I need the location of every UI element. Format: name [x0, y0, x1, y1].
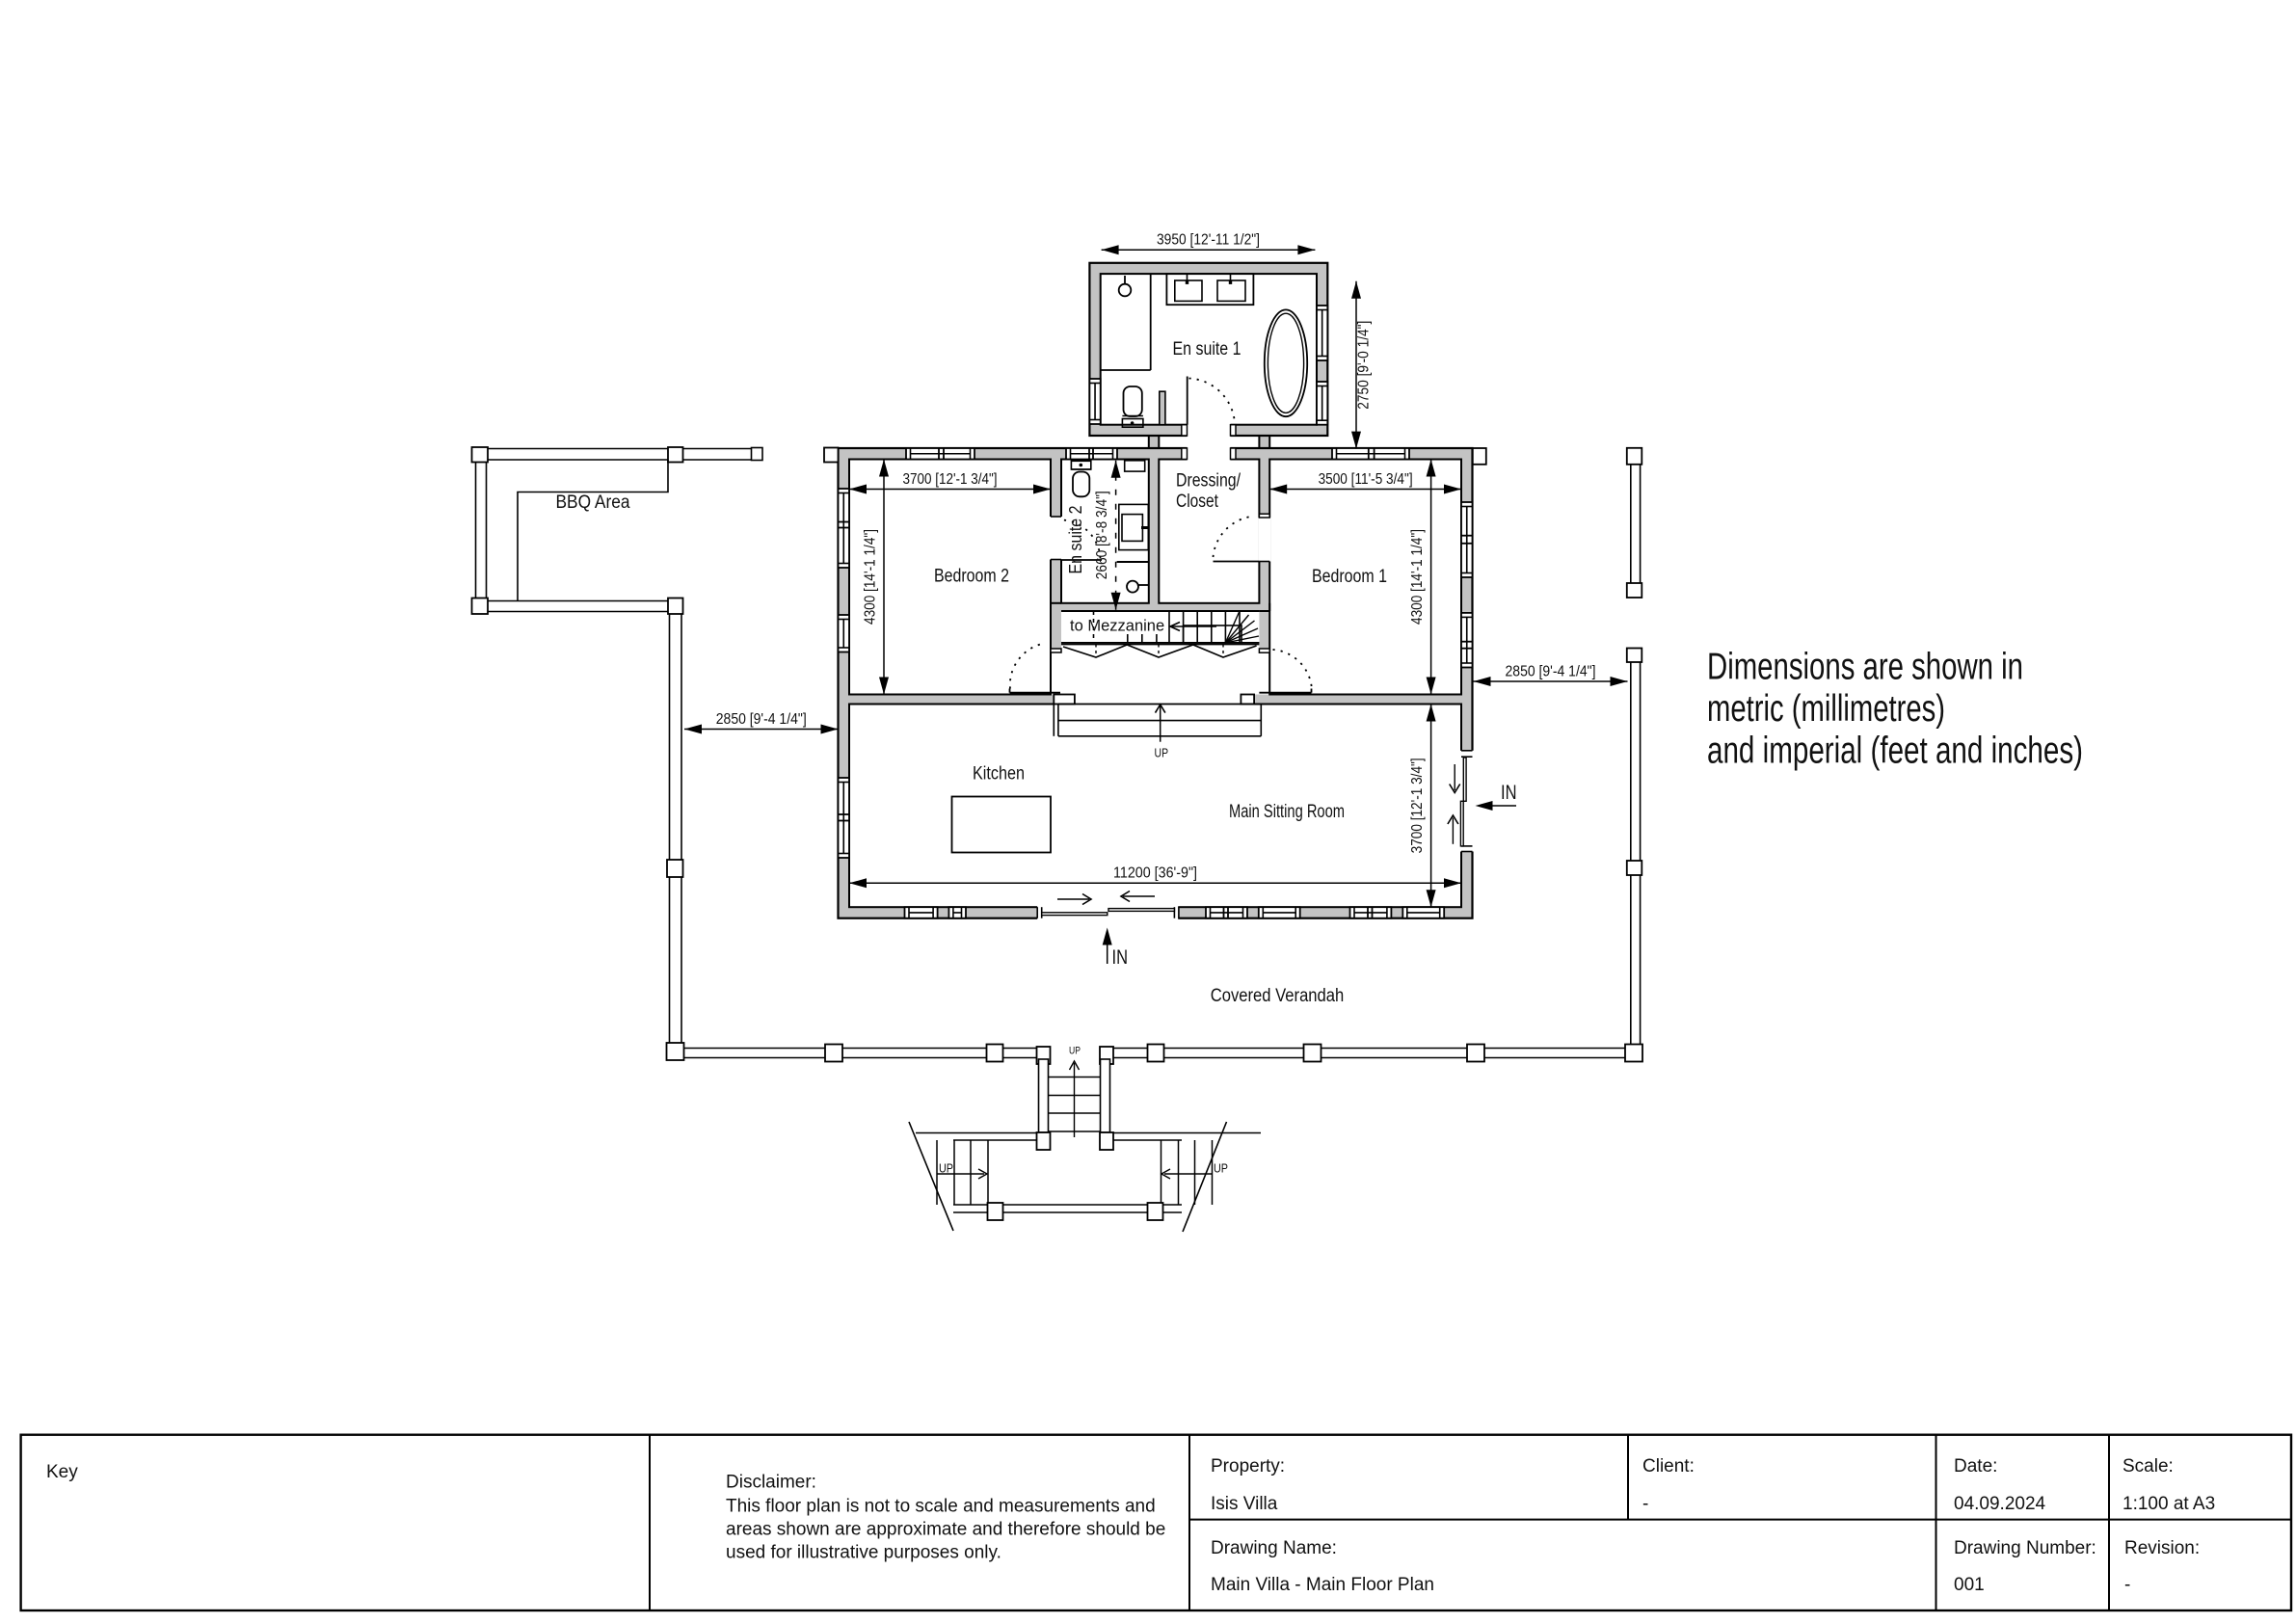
svg-text:En suite 1: En suite 1	[1173, 339, 1241, 359]
svg-text:2660 [8'-8 3/4"]: 2660 [8'-8 3/4"]	[1094, 491, 1110, 579]
svg-text:Date:: Date:	[1954, 1456, 1997, 1477]
svg-text:Main Villa - Main Floor Plan: Main Villa - Main Floor Plan	[1211, 1575, 1434, 1595]
svg-text:Bedroom 2: Bedroom 2	[934, 567, 1009, 587]
svg-text:Dimensions are shown in: Dimensions are shown in	[1707, 647, 2023, 688]
svg-text:Dressing/: Dressing/	[1176, 471, 1241, 492]
svg-text:11200 [36'-9"]: 11200 [36'-9"]	[1113, 865, 1197, 882]
svg-text:Main Sitting Room: Main Sitting Room	[1229, 802, 1345, 822]
svg-text:Scale:: Scale:	[2122, 1456, 2174, 1477]
svg-text:001: 001	[1954, 1575, 1985, 1595]
svg-text:UP: UP	[1155, 746, 1169, 760]
svg-text:UP: UP	[1069, 1046, 1081, 1057]
svg-text:IN: IN	[1501, 782, 1517, 804]
svg-text:4300 [14'-1 1/4"]: 4300 [14'-1 1/4"]	[863, 529, 879, 625]
svg-text:to Mezzanine: to Mezzanine	[1070, 618, 1164, 635]
svg-text:Property:: Property:	[1211, 1456, 1285, 1477]
svg-text:Closet: Closet	[1176, 492, 1219, 512]
svg-text:En suite 2: En suite 2	[1066, 506, 1085, 574]
svg-text:3700 [12'-1 3/4"]: 3700 [12'-1 3/4"]	[1409, 758, 1426, 853]
svg-text:4300 [14'-1 1/4"]: 4300 [14'-1 1/4"]	[1409, 529, 1426, 625]
svg-text:This floor plan is not to scal: This floor plan is not to scale and meas…	[726, 1497, 1156, 1517]
svg-text:IN: IN	[1112, 946, 1129, 969]
svg-text:Bedroom 1: Bedroom 1	[1312, 567, 1387, 587]
svg-text:Drawing Number:: Drawing Number:	[1954, 1538, 2096, 1558]
svg-text:UP: UP	[1214, 1161, 1228, 1176]
svg-text:areas shown are approximate an: areas shown are approximate and therefor…	[726, 1520, 1165, 1540]
svg-text:-: -	[1642, 1494, 1648, 1514]
svg-text:Kitchen: Kitchen	[973, 764, 1025, 785]
svg-text:Drawing Name:: Drawing Name:	[1211, 1538, 1337, 1558]
svg-text:3950 [12'-11 1/2"]: 3950 [12'-11 1/2"]	[1157, 232, 1260, 249]
svg-text:2850 [9'-4 1/4"]: 2850 [9'-4 1/4"]	[1506, 664, 1596, 680]
svg-text:1:100 at A3: 1:100 at A3	[2122, 1494, 2215, 1514]
svg-text:-: -	[2124, 1575, 2130, 1595]
svg-text:2850 [9'-4 1/4"]: 2850 [9'-4 1/4"]	[716, 711, 807, 728]
svg-text:3700 [12'-1 3/4"]: 3700 [12'-1 3/4"]	[903, 471, 998, 488]
svg-text:used for illustrative purposes: used for illustrative purposes only.	[726, 1542, 1001, 1562]
svg-text:3500 [11'-5 3/4"]: 3500 [11'-5 3/4"]	[1319, 471, 1413, 488]
svg-text:Isis Villa: Isis Villa	[1211, 1494, 1278, 1514]
svg-text:2750 [9'-0 1/4"]: 2750 [9'-0 1/4"]	[1356, 321, 1373, 410]
svg-text:metric (millimetres): metric (millimetres)	[1707, 688, 1945, 730]
svg-text:Disclaimer:: Disclaimer:	[726, 1473, 816, 1493]
svg-text:04.09.2024: 04.09.2024	[1954, 1494, 2046, 1514]
svg-text:Covered Verandah: Covered Verandah	[1211, 986, 1345, 1006]
svg-text:BBQ Area: BBQ Area	[556, 492, 630, 513]
svg-text:Client:: Client:	[1642, 1456, 1695, 1477]
svg-text:UP: UP	[939, 1161, 953, 1176]
svg-text:Key: Key	[46, 1462, 78, 1482]
svg-text:and imperial (feet and inches): and imperial (feet and inches)	[1707, 731, 2083, 772]
svg-text:Revision:: Revision:	[2124, 1538, 2200, 1558]
